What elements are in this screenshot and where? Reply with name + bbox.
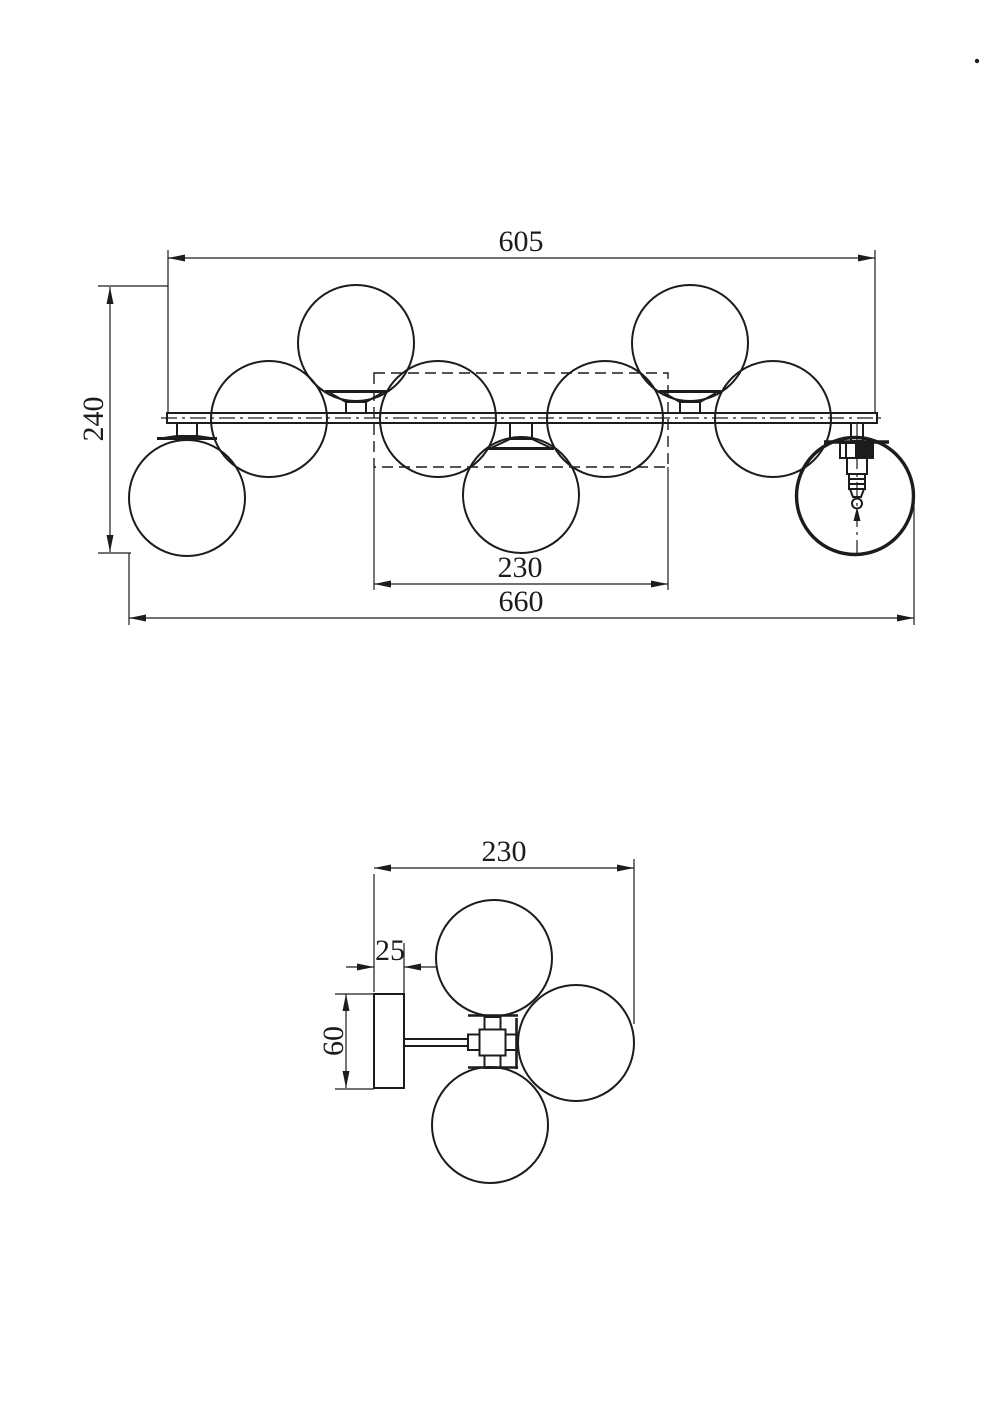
glass-globe — [518, 985, 634, 1101]
dim-arrow — [357, 964, 374, 971]
glass-globe — [129, 440, 245, 556]
dim-text-60: 60 — [317, 1026, 350, 1056]
dim-text-605: 605 — [499, 225, 544, 258]
dim-bar-length: 605 — [168, 225, 875, 413]
ink-speck — [975, 59, 979, 63]
glass-globe — [547, 361, 663, 477]
hub — [468, 1016, 518, 1070]
holder-stem — [346, 402, 366, 413]
dim-depth: 230 — [374, 835, 634, 1024]
glass-globe — [436, 900, 552, 1016]
dim-plate-thickness: 25 — [346, 934, 436, 993]
dim-arrow — [858, 255, 875, 262]
technical-drawing: 605 240 230 660 — [0, 0, 992, 1403]
glass-globe — [632, 285, 748, 401]
glass-globe — [380, 361, 496, 477]
drawing-sheet: 605 240 230 660 — [0, 0, 992, 1403]
dim-total-height: 240 — [77, 286, 168, 553]
module-outline-dashed — [374, 373, 668, 467]
lamp-socket-detail — [797, 423, 914, 558]
glass-globe — [715, 361, 831, 477]
globe-holder-top-left — [325, 392, 387, 414]
dim-arrow — [374, 581, 391, 588]
glass-globe — [211, 361, 327, 477]
dim-text-240: 240 — [77, 397, 110, 442]
wall-plate — [374, 994, 404, 1088]
dim-text-230-side: 230 — [482, 835, 527, 868]
mounting-bar — [161, 413, 883, 423]
holder-stem — [177, 423, 197, 436]
dim-module-width: 230 — [374, 467, 668, 590]
side-view: 230 25 60 — [317, 835, 634, 1183]
glass-globe — [432, 1067, 548, 1183]
arm — [404, 1039, 468, 1046]
dim-arrow — [374, 865, 391, 872]
dim-arrow — [107, 287, 114, 304]
dim-arrow — [404, 964, 421, 971]
dim-arrow — [168, 255, 185, 262]
hub-stub-top — [485, 1017, 501, 1030]
dim-text-230: 230 — [498, 551, 543, 584]
dim-arrow — [129, 615, 146, 622]
dim-arrow — [343, 1071, 350, 1088]
hub-stub-left — [468, 1035, 480, 1051]
clamp-block — [855, 442, 873, 459]
dim-text-660: 660 — [499, 585, 544, 618]
dim-arrow — [897, 615, 914, 622]
dim-plate-height: 60 — [317, 994, 374, 1089]
dim-arrow — [651, 581, 668, 588]
dim-text-25: 25 — [375, 934, 405, 967]
dim-arrow — [107, 535, 114, 552]
globe-holder-bottom-center — [488, 423, 554, 449]
hub-body — [480, 1030, 506, 1056]
dim-arrow — [343, 994, 350, 1011]
glass-globe — [463, 437, 579, 553]
globe-holder-bottom-left — [157, 423, 217, 439]
front-view: 605 240 230 660 — [77, 225, 914, 625]
holder-stem — [680, 402, 700, 413]
dim-arrow — [617, 865, 634, 872]
